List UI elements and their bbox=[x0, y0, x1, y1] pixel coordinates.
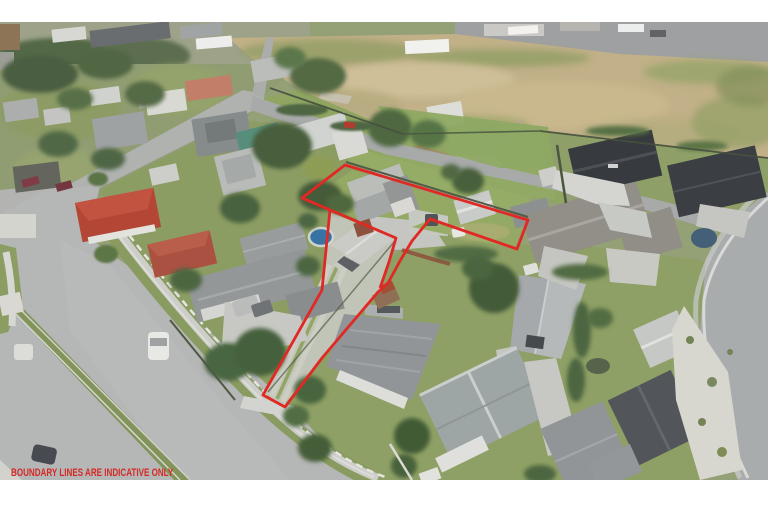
svg-text:BOUNDARY LINES ARE INDICATIVE: BOUNDARY LINES ARE INDICATIVE ONLY bbox=[11, 467, 174, 480]
